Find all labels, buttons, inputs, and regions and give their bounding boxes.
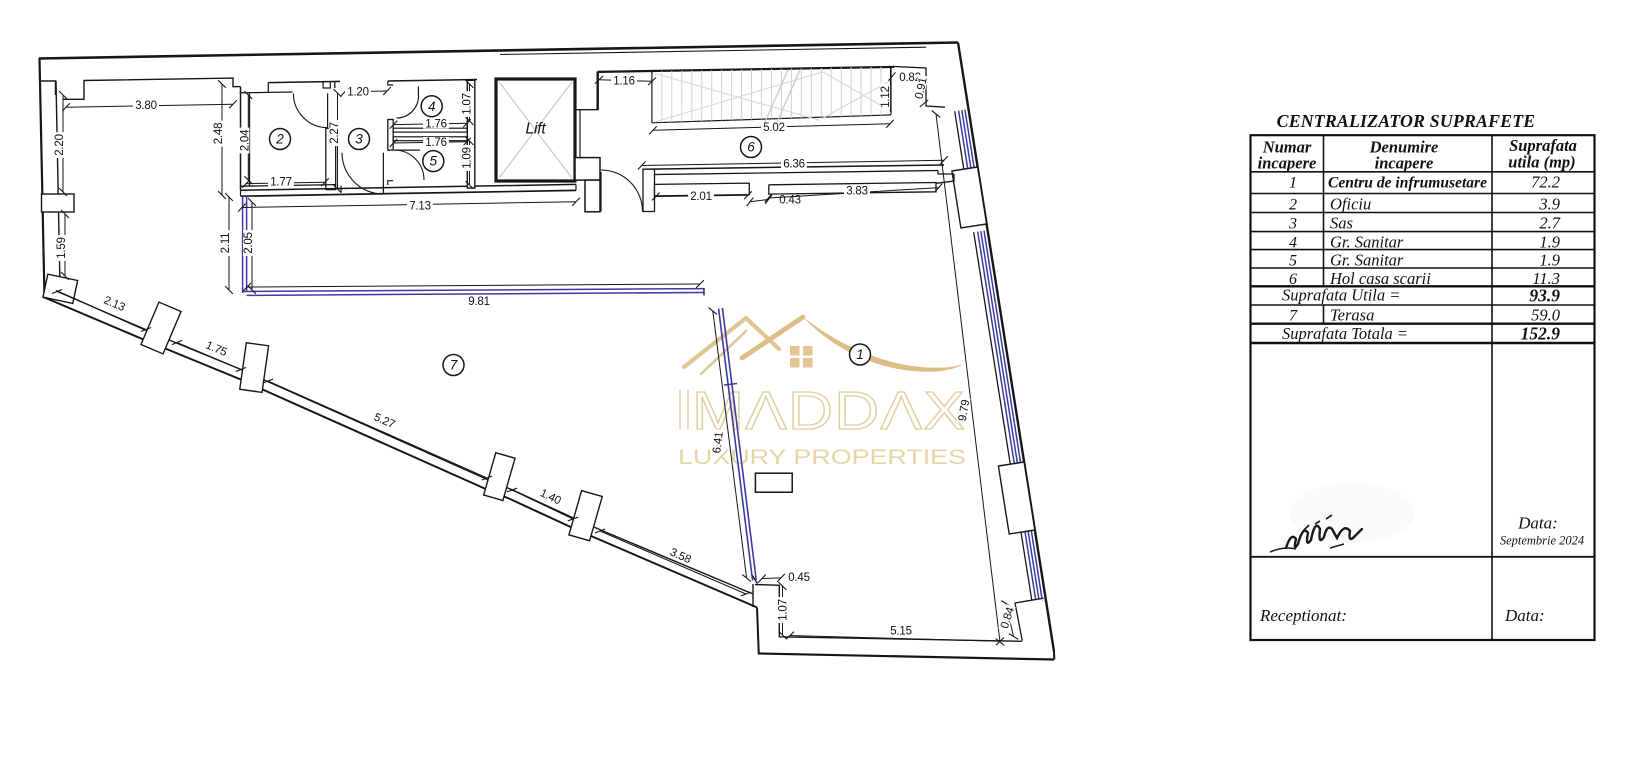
svg-text:Septembrie 2024: Septembrie 2024	[1500, 534, 1584, 548]
svg-text:Gr. Sanitar: Gr. Sanitar	[1330, 232, 1404, 251]
svg-text:3: 3	[355, 132, 363, 147]
svg-text:2.01: 2.01	[690, 191, 712, 203]
svg-text:1.07: 1.07	[462, 93, 474, 115]
svg-text:5.15: 5.15	[890, 626, 912, 638]
svg-text:Lift: Lift	[526, 121, 547, 138]
svg-text:1.9: 1.9	[1539, 232, 1560, 251]
svg-text:utila (mp): utila (mp)	[1508, 153, 1575, 172]
svg-text:0.84: 0.84	[999, 605, 1017, 630]
svg-text:3.83: 3.83	[846, 186, 868, 198]
svg-text:0.45: 0.45	[788, 572, 810, 584]
svg-text:2.05: 2.05	[243, 232, 255, 254]
svg-text:Gr. Sanitar: Gr. Sanitar	[1330, 250, 1404, 269]
svg-text:1.9: 1.9	[1539, 250, 1560, 269]
svg-text:5.02: 5.02	[763, 122, 785, 134]
svg-text:1.12: 1.12	[880, 86, 892, 108]
svg-text:1.77: 1.77	[270, 177, 292, 189]
svg-text:1.59: 1.59	[56, 237, 68, 259]
svg-text:7.13: 7.13	[409, 201, 431, 213]
svg-text:9.81: 9.81	[468, 296, 490, 308]
svg-text:4: 4	[1289, 234, 1297, 251]
svg-text:2.11: 2.11	[220, 233, 232, 254]
svg-text:3.9: 3.9	[1538, 194, 1560, 213]
svg-text:Data:: Data:	[1517, 514, 1558, 533]
svg-text:1.09: 1.09	[462, 147, 474, 169]
svg-text:incapere: incapere	[1375, 154, 1434, 173]
svg-text:3.80: 3.80	[135, 100, 157, 112]
svg-text:Suprafata Totala =: Suprafata Totala =	[1282, 324, 1408, 343]
svg-text:7: 7	[450, 358, 458, 373]
svg-text:2: 2	[275, 132, 284, 147]
svg-text:1.76: 1.76	[425, 119, 447, 131]
svg-text:Receptionat:: Receptionat:	[1259, 606, 1347, 625]
svg-text:incapere: incapere	[1258, 154, 1317, 173]
svg-text:2.27: 2.27	[329, 122, 341, 144]
svg-text:152.9: 152.9	[1521, 324, 1561, 344]
svg-text:9.79: 9.79	[957, 399, 972, 422]
svg-text:1.16: 1.16	[613, 76, 635, 88]
svg-text:93.9: 93.9	[1529, 286, 1560, 306]
svg-text:2.13: 2.13	[102, 294, 127, 313]
svg-text:1: 1	[856, 347, 864, 362]
svg-text:2.20: 2.20	[54, 134, 66, 156]
svg-text:Terasa: Terasa	[1330, 306, 1374, 325]
svg-text:1.07: 1.07	[778, 599, 790, 621]
svg-text:2: 2	[1289, 196, 1297, 213]
svg-text:Centru de infrumusetare: Centru de infrumusetare	[1328, 175, 1487, 192]
svg-text:Sas: Sas	[1330, 213, 1353, 232]
svg-text:59.0: 59.0	[1531, 306, 1561, 325]
svg-text:1: 1	[1289, 175, 1297, 192]
svg-text:Data:: Data:	[1504, 606, 1545, 625]
svg-text:4: 4	[428, 99, 436, 114]
svg-text:5: 5	[1289, 252, 1297, 269]
svg-text:2.04: 2.04	[239, 129, 251, 151]
svg-text:1.76: 1.76	[425, 137, 447, 149]
svg-text:2.7: 2.7	[1539, 213, 1560, 232]
svg-text:3: 3	[1288, 215, 1297, 232]
svg-text:6: 6	[747, 140, 755, 155]
svg-text:2.48: 2.48	[213, 123, 225, 145]
svg-text:Suprafata Utila =: Suprafata Utila =	[1282, 286, 1400, 305]
svg-text:CENTRALIZATOR SUPRAFETE: CENTRALIZATOR SUPRAFETE	[1277, 111, 1536, 131]
svg-text:72.2: 72.2	[1531, 173, 1560, 192]
svg-text:6.36: 6.36	[783, 159, 805, 171]
svg-text:Oficiu: Oficiu	[1330, 194, 1371, 213]
svg-text:5: 5	[430, 154, 438, 169]
svg-text:1.20: 1.20	[347, 87, 369, 99]
svg-text:7: 7	[1289, 308, 1298, 325]
